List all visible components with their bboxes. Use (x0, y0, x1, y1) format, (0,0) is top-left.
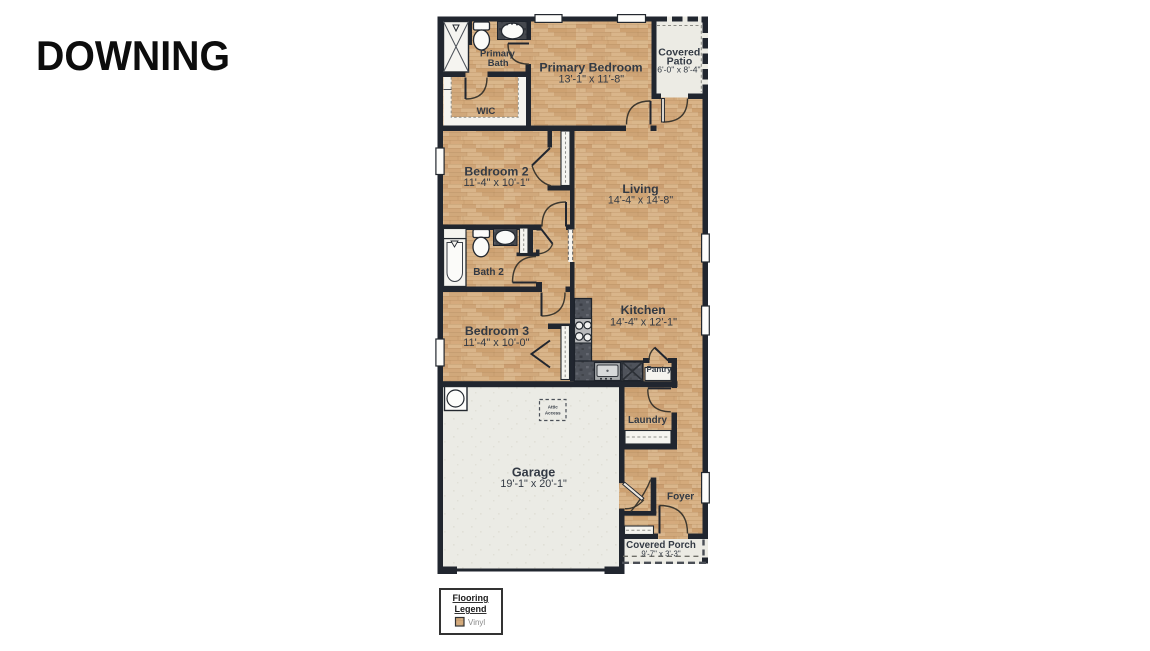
svg-text:Legend: Legend (454, 604, 486, 614)
svg-text:Vinyl: Vinyl (468, 618, 485, 627)
svg-text:WIC: WIC (477, 106, 496, 117)
svg-text:11'-4" x 10'-0": 11'-4" x 10'-0" (463, 337, 529, 349)
svg-text:6'-0" x 8'-4": 6'-0" x 8'-4" (657, 65, 700, 75)
svg-text:Bedroom 3: Bedroom 3 (465, 324, 529, 338)
svg-text:Attic: Attic (548, 405, 558, 410)
svg-text:DOWNING: DOWNING (36, 32, 230, 79)
svg-text:Access: Access (545, 410, 561, 415)
svg-text:13'-1" x 11'-8": 13'-1" x 11'-8" (558, 73, 624, 85)
svg-text:Bath 2: Bath 2 (473, 267, 504, 278)
svg-text:19'-1" x 20'-1": 19'-1" x 20'-1" (500, 478, 567, 490)
svg-text:14'-4" x 14'-8": 14'-4" x 14'-8" (608, 195, 673, 207)
svg-text:Laundry: Laundry (628, 415, 667, 426)
svg-text:9'-7" x 3'-3": 9'-7" x 3'-3" (641, 550, 681, 559)
svg-text:11'-4" x 10'-1": 11'-4" x 10'-1" (464, 177, 530, 189)
svg-text:Pantry: Pantry (647, 365, 672, 374)
svg-text:Bath: Bath (488, 57, 509, 68)
svg-text:Flooring: Flooring (453, 593, 489, 603)
svg-text:Kitchen: Kitchen (621, 303, 666, 317)
svg-text:14'-4" x 12'-1": 14'-4" x 12'-1" (610, 317, 677, 329)
svg-text:Foyer: Foyer (667, 492, 694, 503)
